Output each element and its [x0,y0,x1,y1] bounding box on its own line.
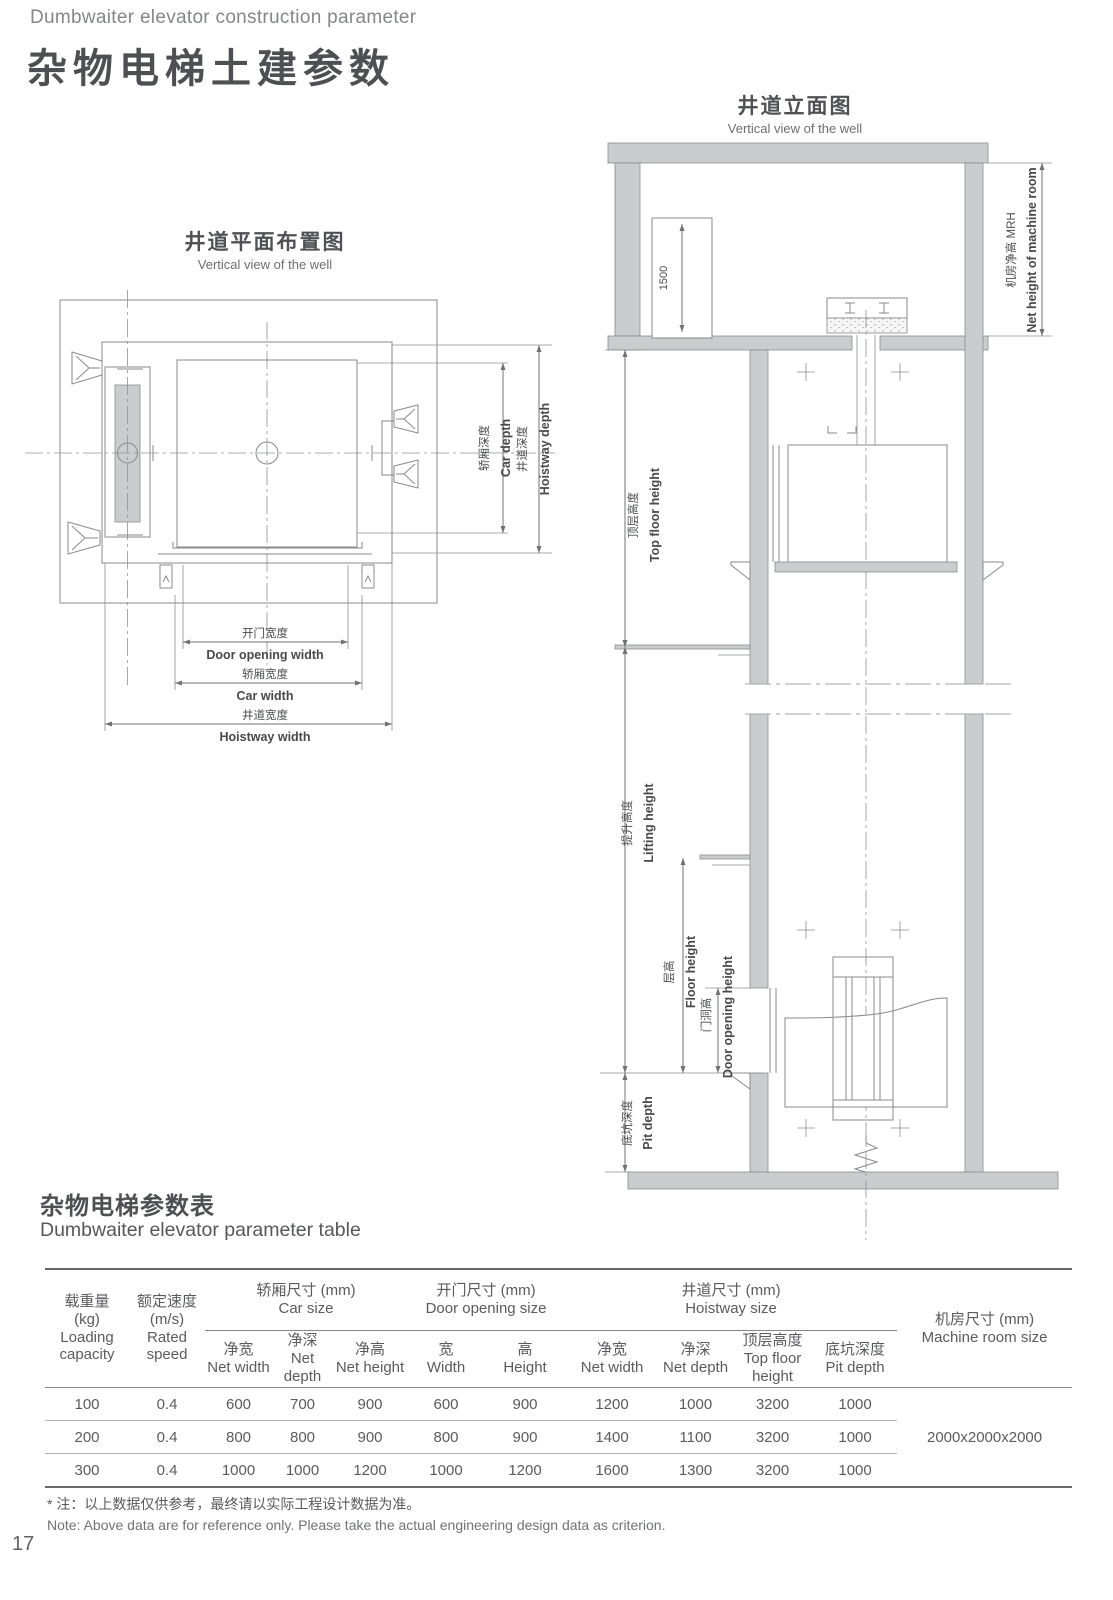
sub-header-width: 宽 Width [407,1331,485,1388]
cell: 300 [45,1454,129,1488]
break-lines [745,684,1015,714]
car-bottom-position [770,957,947,1172]
label-mrh-zh: 机房净高 MRH [1004,212,1018,287]
elevation-view-drawing: 1500 机房净高 MRH Net height of machine room… [585,95,1085,1255]
label-pit-depth-en: Pit depth [641,1096,655,1149]
label-car-depth-zh: 轿厢深度 [477,425,491,471]
plan-ticks [117,369,372,535]
label-floor-height-en: Floor height [684,935,698,1008]
label-door-height-zh: 门洞高 [699,998,713,1033]
note-zh: * 注：以上数据仅供参考，最终请以实际工程设计数据为准。 [47,1494,420,1514]
sub-header-height: 高 Height [485,1331,565,1388]
cell: 900 [485,1421,565,1454]
cell: 800 [272,1421,333,1454]
sill-brackets [731,562,1003,1089]
cell: 900 [485,1388,565,1421]
cell: 3200 [732,1421,813,1454]
top-landing-sill [775,562,957,572]
cell: 1600 [565,1454,659,1488]
sub-header-hoistway-net-depth: 净深 Net depth [659,1331,732,1388]
label-pit-depth-zh: 底坑深度 [620,1100,634,1146]
machine-room-en: Machine room size [897,1329,1072,1347]
machine-room-zh: 机房尺寸 (mm) [897,1311,1072,1329]
cell: 1300 [659,1454,732,1488]
hoistway-size-en: Hoistway size [565,1300,897,1318]
cell: 800 [407,1421,485,1454]
cell: 1400 [565,1421,659,1454]
cell: 0.4 [129,1388,205,1421]
sub-header-net-height: 净高 Net height [333,1331,407,1388]
cell: 0.4 [129,1421,205,1454]
cell: 1000 [205,1454,272,1488]
door-sill [158,542,374,588]
cell: 100 [45,1388,129,1421]
loading-unit: (kg) [45,1311,129,1329]
table-title-en: Dumbwaiter elevator parameter table [40,1219,361,1242]
sub-header-pit-depth: 底坑深度 Pit depth [813,1331,897,1388]
label-lifting-en: Lifting height [642,783,656,863]
sub-header-net-width: 净宽 Net width [205,1331,272,1388]
cell: 1000 [813,1388,897,1421]
label-lifting-zh: 提升高度 [620,800,634,846]
page-number: 17 [12,1533,34,1556]
car-size-en: Car size [205,1300,407,1318]
label-mrh-en: Net height of machine room [1025,167,1039,332]
car-size-zh: 轿厢尺寸 (mm) [205,1282,407,1300]
floor-level-lines [712,655,750,865]
speed-zh: 额定速度 [129,1293,205,1311]
catalog-page: Dumbwaiter elevator construction paramet… [0,0,1113,1600]
col-header-machine-room-size: 机房尺寸 (mm) Machine room size [897,1269,1072,1388]
col-header-loading-capacity: 载重量 (kg) Loading capacity [45,1269,129,1388]
door-size-en: Door opening size [407,1300,565,1318]
table-title-zh: 杂物电梯参数表 [40,1186,215,1221]
car-top-position [773,426,947,562]
machine-room-equipment [652,218,907,338]
label-top-floor-en: Top floor height [648,467,662,562]
parameter-table: 载重量 (kg) Loading capacity 额定速度 (m/s) Rat… [45,1268,1072,1488]
label-hoistway-width-en: Hoistway width [220,730,311,744]
cell: 1000 [407,1454,485,1488]
loading-zh: 载重量 [45,1293,129,1311]
table-row: 100 0.4 600 700 900 600 900 1200 1000 32… [45,1388,1072,1421]
cell: 1000 [813,1421,897,1454]
cell: 1000 [813,1454,897,1488]
sub-header-net-depth: 净深 Net depth [272,1331,333,1388]
plan-view-drawing: 开门宽度 Door opening width 轿厢宽度 Car width 井… [20,225,580,765]
cell: 1200 [485,1454,565,1488]
label-door-opening-width-en: Door opening width [206,648,323,662]
note-en: Note: Above data are for reference only.… [47,1517,665,1533]
cell: 1000 [659,1388,732,1421]
cell: 3200 [732,1454,813,1488]
page-title: 杂物电梯土建参数 [27,36,395,94]
traction-machine-beams [827,298,907,318]
speed-en: Rated speed [129,1329,205,1364]
col-header-rated-speed: 额定速度 (m/s) Rated speed [129,1269,205,1388]
label-top-floor-zh: 顶层高度 [626,492,640,538]
sub-header-hoistway-net-width: 净宽 Net width [565,1331,659,1388]
cell: 3200 [732,1388,813,1421]
label-car-depth-en: Car depth [499,419,513,477]
loading-en: Loading capacity [45,1329,129,1364]
hoistway-size-zh: 井道尺寸 (mm) [565,1282,897,1300]
cell: 700 [272,1388,333,1421]
label-door-opening-width-zh: 开门宽度 [242,626,288,640]
cell: 1100 [659,1421,732,1454]
group-header-hoistway-size: 井道尺寸 (mm) Hoistway size [565,1269,897,1331]
cell: 800 [205,1421,272,1454]
cell: 600 [407,1388,485,1421]
label-machine-height: 1500 [658,266,670,290]
label-car-width-en: Car width [237,689,294,703]
machine-pad [827,318,907,333]
label-hoistway-depth-en: Hoistway depth [538,403,552,495]
cell: 900 [333,1421,407,1454]
label-door-height-en: Door opening height [721,955,735,1078]
label-hoistway-width-zh: 井道宽度 [242,708,288,722]
plan-outlines [60,300,437,603]
cell: 1000 [272,1454,333,1488]
page-eyebrow: Dumbwaiter elevator construction paramet… [30,7,416,29]
cell: 600 [205,1388,272,1421]
cell: 1200 [565,1388,659,1421]
cell: 200 [45,1421,129,1454]
label-floor-height-zh: 层高 [662,961,676,984]
speed-unit: (m/s) [129,1311,205,1329]
cell: 0.4 [129,1454,205,1488]
plan-dimension-lines [105,345,539,724]
group-header-door-opening-size: 开门尺寸 (mm) Door opening size [407,1269,565,1331]
label-hoistway-depth-zh: 井道深度 [515,426,529,472]
machine-room-size-value: 2000x2000x2000 [897,1388,1072,1488]
cell: 1200 [333,1454,407,1488]
group-header-car-size: 轿厢尺寸 (mm) Car size [205,1269,407,1331]
plan-extension-lines [105,345,552,731]
cell: 900 [333,1388,407,1421]
label-car-width-zh: 轿厢宽度 [242,667,288,681]
sub-header-top-floor-height: 顶层高度 Top floor height [732,1331,813,1388]
door-size-zh: 开门尺寸 (mm) [407,1282,565,1300]
